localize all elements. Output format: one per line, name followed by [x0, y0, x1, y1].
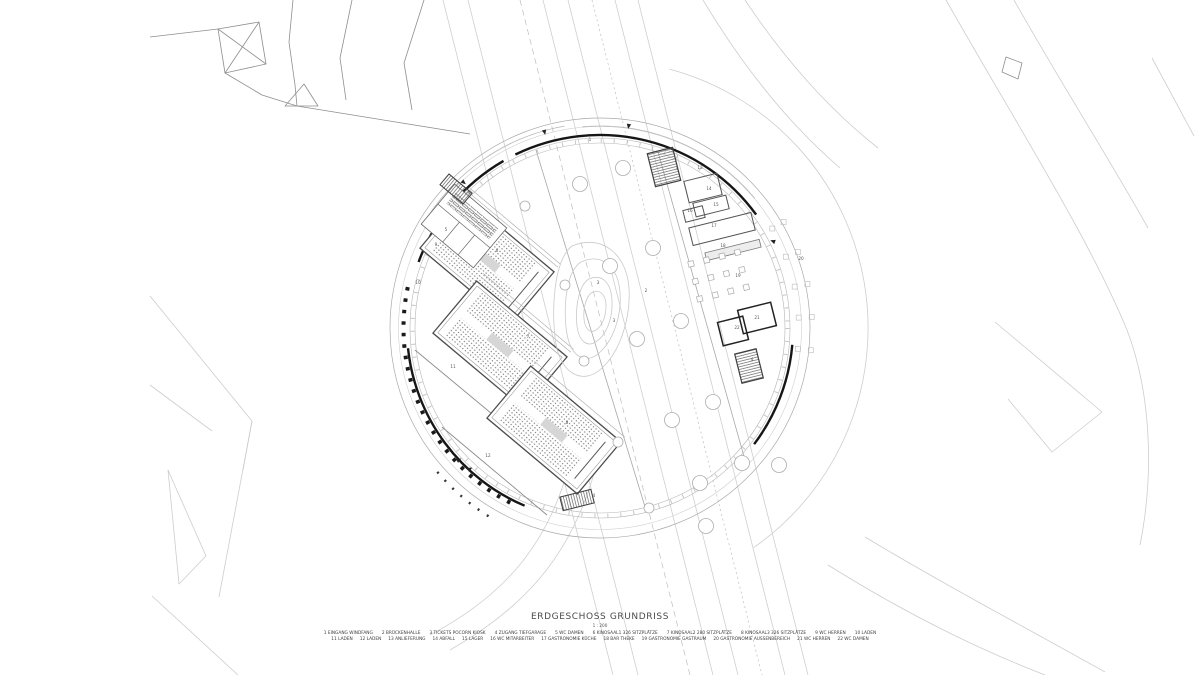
- legend-item: 12 LADEN: [360, 637, 382, 642]
- legend-row-2: 11 LADEN12 LADEN13 ANLIEFERUNG14 ABFALL1…: [0, 637, 1200, 642]
- room-number-label: 14: [706, 186, 712, 191]
- room-number-label: 20: [798, 256, 804, 261]
- legend-item: 2 BRÜCKENHALLE: [382, 631, 421, 636]
- floor-plan-canvas: 123344445678910111213141516171819202122: [0, 0, 1200, 675]
- room-number-label: 16: [687, 208, 693, 213]
- legend-item: 3 TICKETS POCORN KIOSK: [429, 631, 485, 636]
- legend-item: 11 LADEN: [331, 637, 353, 642]
- legend-item: 18 BAR THEKE: [603, 637, 634, 642]
- legend-item: 16 WC MITARBEITER: [490, 637, 534, 642]
- legend-item: 1 EINGANG WINDFANG: [324, 631, 373, 636]
- garage-stair-south: [560, 489, 594, 510]
- west-wing: [415, 174, 625, 515]
- room-number-label: 3: [597, 280, 600, 285]
- drawing-sheet: 123344445678910111213141516171819202122 …: [0, 0, 1200, 675]
- room-number-label: 15: [713, 202, 719, 207]
- room-number-label: 22: [734, 325, 740, 330]
- legend-item: 20 GASTRONOMIE AUSSENBEREICH: [713, 637, 790, 642]
- room-16: [683, 206, 705, 222]
- room-number-label: 18: [720, 243, 726, 248]
- legend-item: 22 WC DAMEN: [837, 637, 868, 642]
- legend-item: 8 KINOSAAL3 326 SITZPLÄTZE: [741, 631, 806, 636]
- room-number-label: 11: [450, 364, 456, 369]
- room-number-label: 4: [468, 190, 471, 195]
- room-number-label: 19: [735, 273, 741, 278]
- room-number-label: 5: [445, 227, 448, 232]
- room-number-label: 17: [711, 223, 717, 228]
- bar-18: [705, 239, 761, 260]
- room-number-label: 4: [751, 357, 754, 362]
- room-number-label: 6: [496, 248, 499, 253]
- drawing-title: ERDGESCHOSS GRUNDRISS: [0, 612, 1200, 622]
- room-number-label: 7: [527, 334, 530, 339]
- room-number-label: 9: [435, 242, 438, 247]
- legend-item: 10 LADEN: [855, 631, 877, 636]
- room-number-label: 4: [593, 493, 596, 498]
- terrace-tables: [770, 220, 814, 353]
- room-15: [693, 195, 729, 217]
- legend-item: 15 LAGER: [462, 637, 483, 642]
- room-number-label: 21: [754, 315, 760, 320]
- drawing-scale: 1 : 200: [0, 623, 1200, 628]
- legend-item: 9 WC HERREN: [815, 631, 846, 636]
- wc-22: [717, 316, 748, 346]
- legend-item: 4 ZUGANG TIEFGARAGE: [495, 631, 546, 636]
- room-number-label: 1: [589, 137, 592, 142]
- legend-item: 7 KINOSAAL2 280 SITZPLÄTZE: [667, 631, 732, 636]
- title-block: ERDGESCHOSS GRUNDRISS 1 : 200 1 EINGANG …: [0, 612, 1200, 642]
- legend-item: 13 ANLIEFERUNG: [388, 637, 425, 642]
- room-number-label: 3: [613, 318, 616, 323]
- legend-row-1: 1 EINGANG WINDFANG2 BRÜCKENHALLE3 TICKET…: [0, 631, 1200, 636]
- room-number-label: 10: [415, 280, 421, 285]
- legend-item: 21 WC HERREN: [797, 637, 830, 642]
- site-context: [150, 0, 1194, 675]
- room-number-label: 13: [697, 165, 703, 170]
- room-number-label: 12: [485, 453, 491, 458]
- room-number-label: 4: [676, 166, 679, 171]
- legend-item: 17 GASTRONOMIE KÜCHE: [541, 637, 596, 642]
- room-number-label: 8: [566, 420, 569, 425]
- legend-item: 6 KINOSAAL1 326 SITZPLÄTZE: [593, 631, 658, 636]
- room-number-label: 2: [645, 288, 648, 293]
- legend-item: 5 WC DAMEN: [555, 631, 584, 636]
- legend-item: 19 GASTRONOMIE GASTRAUM: [642, 637, 707, 642]
- legend-item: 14 ABFALL: [433, 637, 456, 642]
- stair-room-se: [735, 349, 764, 383]
